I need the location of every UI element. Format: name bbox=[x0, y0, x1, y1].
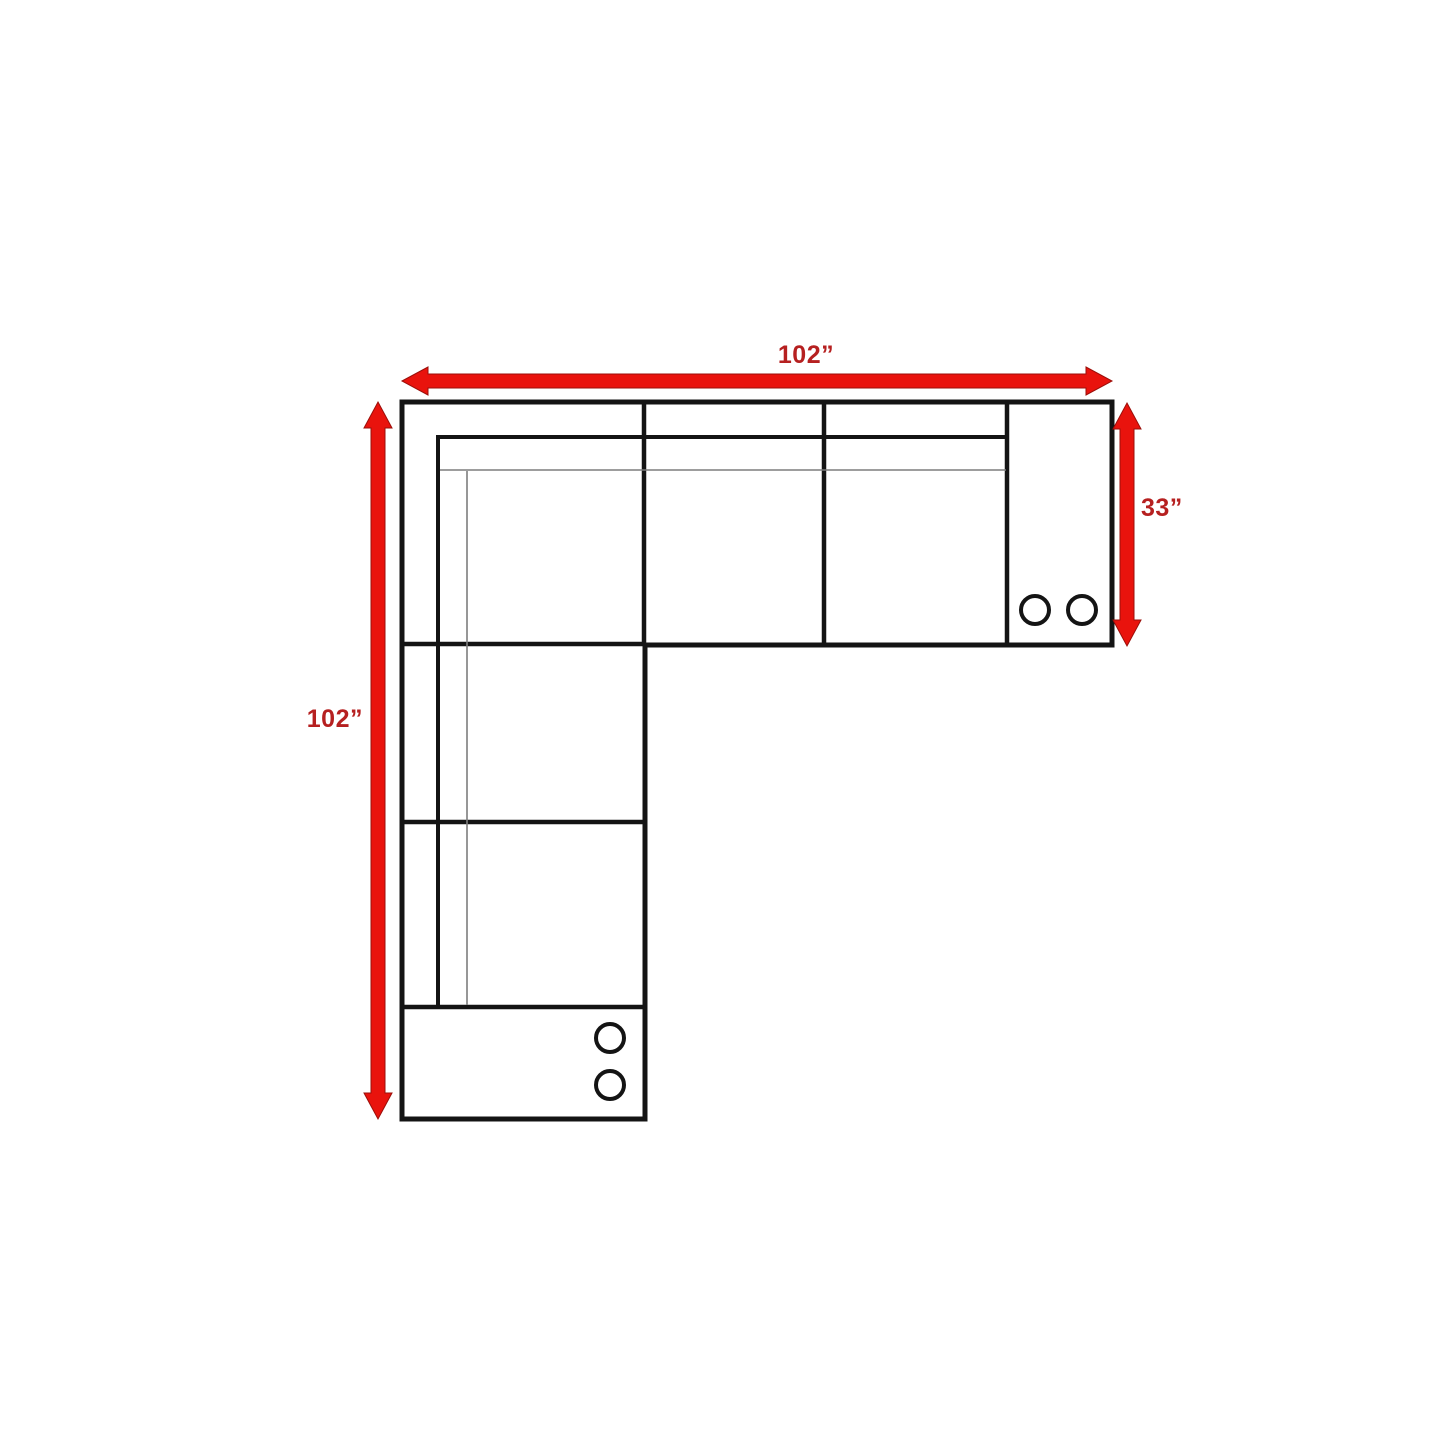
right-depth-label: 33” bbox=[1141, 494, 1183, 522]
top-width-arrow bbox=[402, 367, 1112, 395]
cupholder-right-console-1 bbox=[1021, 596, 1049, 624]
right-depth-arrow bbox=[1113, 403, 1141, 646]
cupholder-bottom-console-1 bbox=[596, 1024, 624, 1052]
sectional-sofa-dimension-diagram: 102” 102” 33” bbox=[0, 0, 1445, 1445]
sofa-plan bbox=[402, 402, 1112, 1119]
diagram-canvas: 102” 102” 33” bbox=[0, 0, 1445, 1445]
cupholder-right-console-2 bbox=[1068, 596, 1096, 624]
cupholder-bottom-console-2 bbox=[596, 1071, 624, 1099]
backrest-arm-inner-line bbox=[438, 437, 1007, 1005]
left-height-arrow bbox=[364, 402, 392, 1119]
left-height-label: 102” bbox=[307, 705, 363, 733]
top-width-label: 102” bbox=[778, 341, 834, 369]
